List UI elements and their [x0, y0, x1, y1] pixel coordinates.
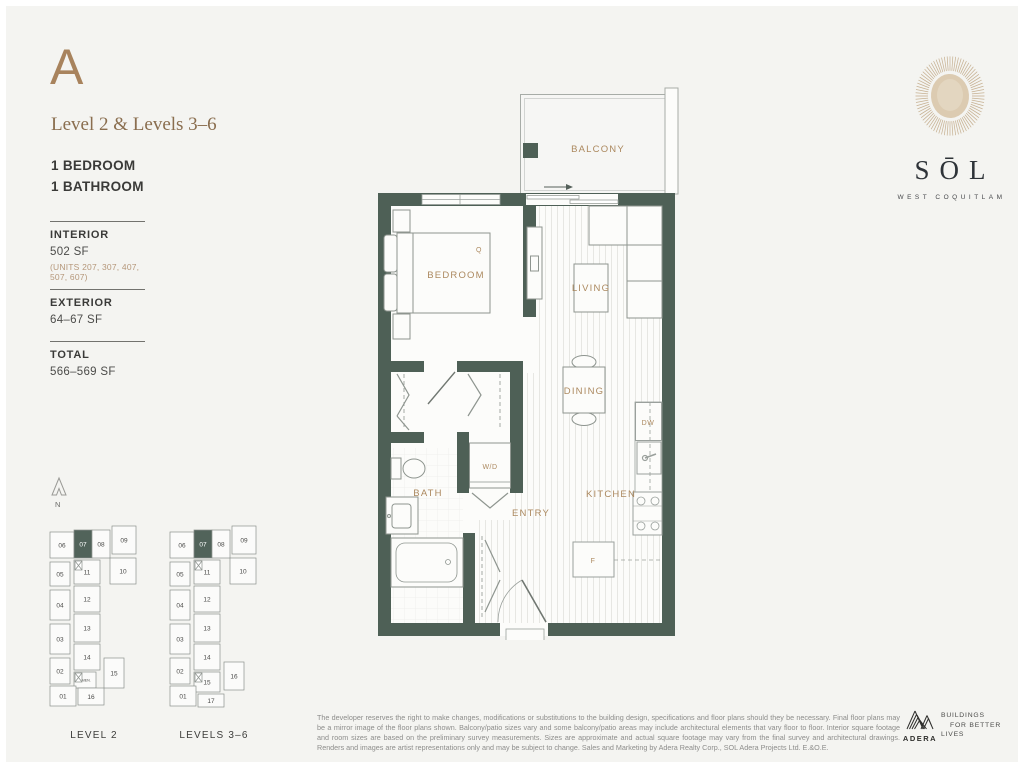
keyplan-unit-label: 15: [203, 679, 211, 686]
adera-name: ADERA: [901, 734, 939, 743]
keyplan-unit-label: 02: [176, 668, 184, 675]
keyplan-levels3-6: 0607080905111004120313021415160117: [168, 520, 260, 708]
keyplan-unit-label: 08: [217, 541, 225, 548]
living-label: LIVING: [572, 283, 610, 294]
keyplan-unit-label: 04: [56, 602, 64, 609]
sofa-chaise: [589, 206, 629, 245]
keyplan-unit-label: 07: [199, 541, 207, 548]
balcony-label: BALCONY: [571, 144, 625, 155]
keyplan-unit-label: 05: [56, 571, 64, 578]
plank-floor-entry: [476, 520, 513, 623]
adera-tagline-line: LIVES: [941, 730, 1001, 740]
keyplan-unit-label: 11: [204, 569, 211, 576]
disclaimer-text: The developer reserves the right to make…: [317, 713, 900, 753]
keyplan-unit-label: 01: [179, 693, 187, 700]
keyplan-unit-label: 05: [176, 571, 184, 578]
keyplan-unit-label: 09: [120, 537, 128, 544]
sol-wordmark: SŌL: [890, 155, 1010, 186]
keyplan-unit-label: 08: [97, 541, 105, 548]
keyplan-unit-label: 12: [203, 596, 211, 603]
stat-exterior: EXTERIOR 64–67 SF: [50, 289, 145, 326]
keyplan-unit-label: 12: [83, 596, 91, 603]
stat-interior-units: (UNITS 207, 307, 407, 507, 607): [50, 262, 145, 282]
bedroom-count: 1 BEDROOM: [51, 155, 144, 176]
stat-total-value: 566–569 SF: [50, 366, 145, 378]
keyplan-level2-caption: LEVEL 2: [48, 730, 140, 741]
balcony-column: [523, 143, 538, 158]
sol-logo: SŌL WEST COQUITLAM: [890, 46, 1010, 201]
keyplan-unit-label: 03: [176, 636, 184, 643]
keyplan-unit-label: 07: [79, 541, 87, 548]
sunburst-icon: [890, 46, 1010, 146]
fridge-label: F: [591, 558, 596, 565]
keyplan-unit-label: 13: [203, 625, 211, 632]
kitchen-sink: [637, 442, 661, 474]
keyplan-unit-label: 04: [176, 602, 184, 609]
bedroom-label: BEDROOM: [427, 270, 485, 281]
floorplan-drawing: BALCONY BEDROOM LIVING DINING KITCHEN BA…: [360, 80, 700, 640]
plan-subtitle: Level 2 & Levels 3–6: [51, 114, 217, 136]
bedroom-window: [422, 195, 500, 205]
bathroom-count: 1 BATHROOM: [51, 176, 144, 197]
nightstand: [393, 210, 410, 232]
nightstand: [393, 314, 410, 339]
plan-letter: A: [50, 42, 83, 92]
bath-tile-floor: [391, 448, 463, 623]
toilet-bowl: [403, 459, 425, 478]
keyplan-unit-label: 10: [119, 568, 127, 575]
keyplan-unit-label: 17: [207, 698, 215, 705]
dishwasher-label: DW: [642, 420, 655, 427]
keyplan-unit-label: 10: [239, 568, 247, 575]
north-arrow-icon: [50, 476, 68, 498]
stat-interior: INTERIOR 502 SF (UNITS 207, 307, 407, 50…: [50, 221, 145, 282]
stat-total: TOTAL 566–569 SF: [50, 341, 145, 378]
wd-label: W/D: [482, 464, 497, 471]
pillow: [384, 274, 397, 311]
sofa: [627, 206, 662, 318]
keyplan-unit-label: 06: [58, 542, 66, 549]
dining-label: DINING: [564, 386, 604, 397]
floorplan-sheet: A Level 2 & Levels 3–6 1 BEDROOM 1 BATHR…: [0, 0, 1024, 768]
stat-exterior-label: EXTERIOR: [50, 297, 145, 309]
pillow: [384, 235, 397, 272]
keyplan-unit-label: 13: [83, 625, 91, 632]
sol-location: WEST COQUITLAM: [890, 194, 1010, 201]
queen-label: Q: [476, 247, 482, 254]
keyplan-unit-label: 01: [59, 693, 67, 700]
stat-total-label: TOTAL: [50, 349, 145, 361]
keyplan-unit-label: 11: [84, 569, 91, 576]
kitchen-label: KITCHEN: [586, 489, 636, 500]
keyplan-unit-label: 16: [230, 673, 238, 680]
keyplan-level2: 06070809051110041203130214AMEN.150116: [48, 520, 140, 708]
keyplan-unit-label: 16: [87, 694, 95, 701]
vanity-sink: [392, 504, 411, 528]
adera-mountain-icon: [905, 707, 935, 731]
keyplan-levels3-6-caption: LEVELS 3–6: [168, 730, 260, 741]
balcony: [521, 88, 679, 195]
stat-exterior-value: 64–67 SF: [50, 314, 145, 326]
keyplan-unit-label: 14: [203, 654, 211, 661]
keyplan-unit-label: 03: [56, 636, 64, 643]
bath-label: BATH: [413, 488, 442, 499]
keyplan-unit-label: 15: [110, 670, 118, 677]
stat-interior-value: 502 SF: [50, 246, 145, 258]
keyplan-unit-label: 02: [56, 668, 64, 675]
keyplan-unit-label: 09: [240, 537, 248, 544]
keyplan-unit-label: 14: [83, 654, 91, 661]
keyplan-unit-label: 06: [178, 542, 186, 549]
north-label: N: [55, 500, 60, 509]
balcony-sliding-door: [526, 194, 618, 205]
adera-tagline-line: BUILDINGS: [941, 711, 1001, 721]
stat-interior-label: INTERIOR: [50, 229, 145, 241]
adera-tagline: BUILDINGS FOR BETTER LIVES: [941, 711, 1001, 740]
bed-bath-block: 1 BEDROOM 1 BATHROOM: [51, 155, 144, 197]
adera-tagline-line: FOR BETTER: [950, 721, 1001, 731]
entry-label: ENTRY: [512, 508, 550, 519]
dining-chair: [572, 413, 596, 426]
toilet-tank: [391, 458, 401, 479]
